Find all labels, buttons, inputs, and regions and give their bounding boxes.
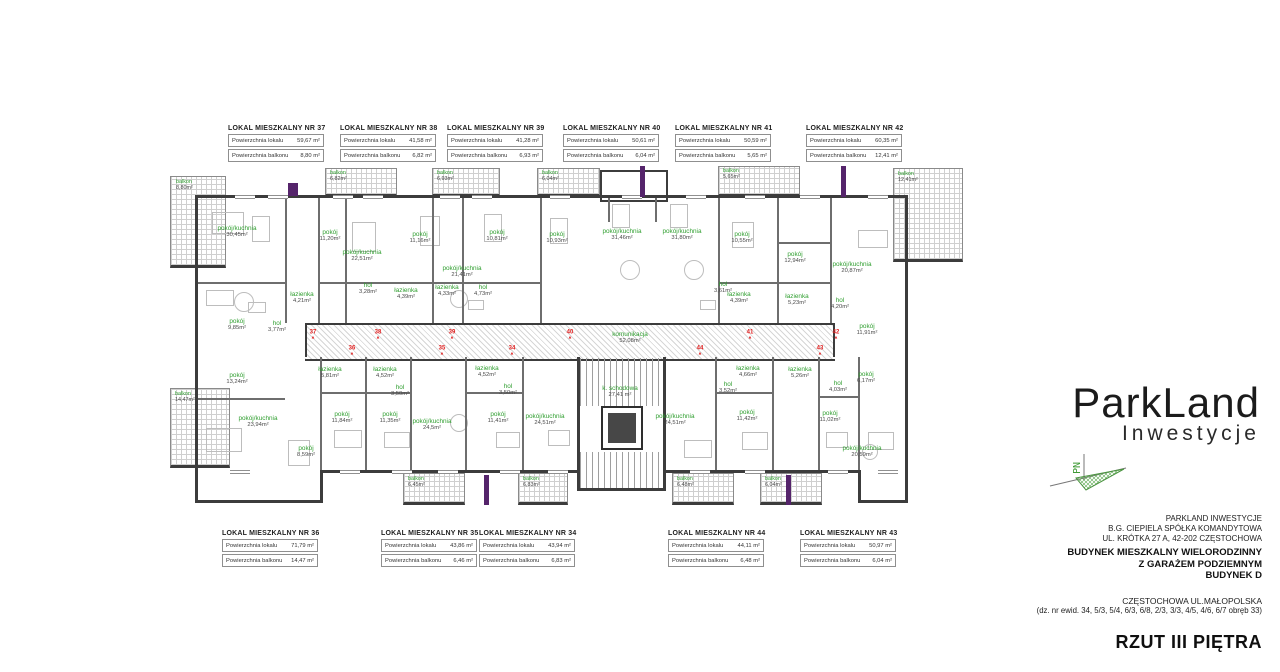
apartment-marker: 36▲ [349, 346, 356, 355]
furniture-table [234, 292, 254, 312]
room-area: 11,16m² [410, 238, 431, 245]
company-line: PARKLAND INWESTYCJE [1010, 514, 1262, 524]
furniture [206, 290, 234, 306]
partition-wall [197, 398, 285, 400]
apartment-table-title: LOKAL MIESZKALNY NR 38 [340, 125, 436, 132]
partition-wall [718, 198, 720, 323]
room-name: pokój [380, 411, 401, 418]
furniture [612, 204, 630, 228]
window [235, 195, 255, 199]
partition-wall [365, 357, 367, 470]
room-label: łazienka4,33m² [435, 284, 458, 298]
location-line: CZĘSTOCHOWA UL.MAŁOPOLSKA [1010, 596, 1262, 606]
room-name: pokój [332, 411, 353, 418]
apt-row-label: Powierzchnia lokalu [679, 138, 730, 144]
room-name: hol [831, 297, 849, 304]
room-label: hol3,28m² [359, 282, 377, 296]
room-name: pokój/kuchnia [217, 225, 256, 232]
room-area: 9,85m² [228, 325, 246, 332]
room-name: pokój [731, 231, 752, 238]
apartment-table-row: Powierzchnia balkonu6,46 m² [381, 554, 477, 567]
room-label: łazienka5,26m² [788, 366, 811, 380]
room-name: pokój [784, 251, 805, 258]
expansion-joint-mark [786, 475, 791, 505]
room-area: 11,02m² [820, 417, 841, 424]
room-area: 4,33m² [435, 291, 458, 298]
room-area: 10,81m² [486, 236, 507, 243]
building-line: BUDYNEK MIESZKALNY WIELORODZINNY [1010, 547, 1262, 559]
furniture [700, 300, 716, 310]
room-label: łazienka4,52m² [373, 366, 396, 380]
room-label: pokój/kuchnia22,51m² [342, 249, 381, 263]
window [878, 470, 898, 474]
apt-row-label: Powierzchnia balkonu [226, 558, 282, 564]
apartment-marker: 42▲ [833, 330, 840, 339]
room-label: pokój10,55m² [731, 231, 752, 245]
room-label: łazienka4,39m² [727, 291, 750, 305]
balcony-area: 8,80m² [176, 186, 193, 192]
room-name: hol [714, 281, 732, 288]
apartment-table-title: LOKAL MIESZKALNY NR 36 [222, 530, 318, 537]
room-area: 11,91m² [857, 330, 878, 337]
room-label: łazienka4,39m² [394, 287, 417, 301]
room-name: pokój [410, 231, 431, 238]
wall [905, 195, 908, 503]
apartment-table-title: LOKAL MIESZKALNY NR 42 [806, 125, 902, 132]
apartment-table-title: LOKAL MIESZKALNY NR 37 [228, 125, 324, 132]
balcony-area: 6,04m² [542, 177, 559, 183]
apt-row-value: 6,93 m² [519, 153, 539, 159]
window [745, 195, 765, 199]
wall [858, 500, 908, 503]
apt-row-value: 6,82 m² [412, 153, 432, 159]
room-label: pokój11,16m² [410, 231, 431, 245]
apartment-marker: 35▲ [439, 346, 446, 355]
partition-wall [655, 198, 657, 222]
partition-wall [285, 198, 287, 323]
wall [320, 470, 323, 503]
furniture [548, 430, 570, 446]
apt-row-value: 43,94 m² [548, 543, 571, 549]
apartment-table: LOKAL MIESZKALNY NR 39Powierzchnia lokal… [447, 125, 543, 164]
window [828, 470, 848, 474]
apartment-table-row: Powierzchnia balkonu6,93 m² [447, 149, 543, 162]
apt-row-label: Powierzchnia balkonu [483, 558, 539, 564]
room-label: k. schodowa27,41 m² [602, 385, 638, 399]
window [333, 195, 353, 199]
apartment-table-row: Powierzchnia lokalu60,35 m² [806, 134, 902, 147]
apartment-table-row: Powierzchnia balkonu14,47 m² [222, 554, 318, 567]
furniture [684, 440, 712, 458]
room-name: pokój [297, 445, 315, 452]
apartment-marker: 39▲ [449, 330, 456, 339]
window [500, 470, 520, 474]
room-label: pokój11,41m² [488, 411, 509, 425]
room-label: łazienka4,52m² [475, 365, 498, 379]
apartment-table-row: Powierzchnia lokalu50,59 m² [675, 134, 771, 147]
door-arrow-icon: ▲ [833, 336, 840, 339]
room-name: k. schodowa [602, 385, 638, 392]
room-area: 4,21m² [290, 298, 313, 305]
apt-row-value: 8,80 m² [300, 153, 320, 159]
expansion-joint-mark [640, 166, 645, 197]
door-arrow-icon: ▲ [310, 336, 317, 339]
apt-row-value: 12,41 m² [875, 153, 898, 159]
room-label: pokój11,35m² [380, 411, 401, 425]
window [340, 470, 360, 474]
furniture-table [620, 260, 640, 280]
room-name: pokój/kuchnia [602, 228, 641, 235]
door-arrow-icon: ▲ [509, 352, 516, 355]
room-name: łazienka [435, 284, 458, 291]
door-arrow-icon: ▲ [349, 352, 356, 355]
room-name: łazienka [373, 366, 396, 373]
room-area: 20,59m² [842, 452, 881, 459]
room-name: pokój [226, 372, 247, 379]
partition-wall [197, 282, 285, 284]
apt-row-label: Powierzchnia lokalu [385, 543, 436, 549]
apt-row-value: 6,04 m² [635, 153, 655, 159]
window [868, 195, 888, 199]
apartment-table-row: Powierzchnia balkonu8,80 m² [228, 149, 324, 162]
room-name: pokój [486, 229, 507, 236]
apt-row-label: Powierzchnia balkonu [810, 153, 866, 159]
apt-row-label: Powierzchnia balkonu [385, 558, 441, 564]
room-label: hol3,77m² [268, 320, 286, 334]
furniture [334, 430, 362, 448]
room-area: 8,59m² [297, 452, 315, 459]
balcony-label: balkon6,04m² [765, 477, 782, 489]
room-name: pokój [546, 231, 567, 238]
door-arrow-icon: ▲ [375, 336, 382, 339]
room-label: hol3,50m² [499, 383, 517, 397]
north-arrow-icon: PN [1046, 446, 1130, 498]
apt-row-value: 14,47 m² [291, 558, 314, 564]
partition-wall [432, 198, 434, 323]
apartment-table: LOKAL MIESZKALNY NR 41Powierzchnia lokal… [675, 125, 771, 164]
brand-subtitle: Inwestycje [1010, 422, 1260, 446]
room-name: pokój/kuchnia [525, 413, 564, 420]
balcony-area: 5,65m² [723, 175, 740, 181]
apt-row-value: 41,28 m² [516, 138, 539, 144]
window [622, 195, 642, 199]
building-line: BUDYNEK D [1010, 570, 1262, 582]
balcony-label: balkon12,41m² [898, 172, 918, 184]
furniture [496, 432, 520, 448]
apartment-table: LOKAL MIESZKALNY NR 40Powierzchnia lokal… [563, 125, 659, 164]
wall [833, 323, 835, 357]
room-area: 5,81m² [318, 373, 341, 380]
room-name: pokój [857, 323, 878, 330]
room-name: pokój [488, 411, 509, 418]
room-area: 4,52m² [373, 373, 396, 380]
room-area: 3,50m² [499, 390, 517, 397]
apt-row-value: 6,04 m² [872, 558, 892, 564]
partition-wall [410, 357, 412, 470]
room-label: pokój/kuchnia31,46m² [602, 228, 641, 242]
room-area: 21,41m² [442, 272, 481, 279]
furniture [352, 222, 376, 252]
partition-wall [462, 198, 464, 323]
apartment-table-title: LOKAL MIESZKALNY NR 34 [479, 530, 575, 537]
room-name: łazienka [785, 293, 808, 300]
apartment-table-row: Powierzchnia lokalu41,28 m² [447, 134, 543, 147]
expansion-joint-mark [288, 183, 298, 196]
room-label: hol4,20m² [831, 297, 849, 311]
partition-wall [465, 357, 467, 470]
room-name: komunikacja [612, 331, 648, 338]
balcony-area: 6,83m² [523, 483, 540, 489]
room-label: pokój/kuchnia24,5m² [412, 418, 451, 432]
apartment-table: LOKAL MIESZKALNY NR 35Powierzchnia lokal… [381, 530, 477, 569]
apt-row-label: Powierzchnia lokalu [232, 138, 283, 144]
wall [577, 488, 666, 491]
partition-wall [715, 357, 717, 470]
apt-row-value: 50,59 m² [744, 138, 767, 144]
room-label: pokój/kuchnia30,45m² [217, 225, 256, 239]
balcony-label: balkon6,48m² [677, 477, 694, 489]
apt-row-label: Powierzchnia lokalu [483, 543, 534, 549]
apartment-table: LOKAL MIESZKALNY NR 43Powierzchnia lokal… [800, 530, 896, 569]
apt-row-label: Powierzchnia lokalu [810, 138, 861, 144]
balcony-area: 6,45m² [408, 483, 425, 489]
room-name: łazienka [394, 287, 417, 294]
apt-row-label: Powierzchnia balkonu [672, 558, 728, 564]
partition-wall [718, 282, 830, 284]
room-label: łazienka5,23m² [785, 293, 808, 307]
expansion-joint-mark [484, 475, 489, 505]
room-name: pokój [857, 371, 875, 378]
window [745, 470, 765, 474]
room-area: 20,87m² [832, 268, 871, 275]
apartment-table-row: Powierzchnia balkonu6,83 m² [479, 554, 575, 567]
room-area: 4,39m² [394, 294, 417, 301]
apartment-table: LOKAL MIESZKALNY NR 44Powierzchnia lokal… [668, 530, 764, 569]
room-name: pokój/kuchnia [342, 249, 381, 256]
room-area: 10,93m² [546, 238, 567, 245]
apt-row-value: 43,86 m² [450, 543, 473, 549]
partition-wall [540, 198, 542, 323]
apartment-marker: 43▲ [817, 346, 824, 355]
window [268, 195, 288, 199]
partition-wall [772, 357, 774, 470]
apt-row-label: Powierzchnia balkonu [232, 153, 288, 159]
door-arrow-icon: ▲ [449, 336, 456, 339]
company-line: UL. KRÓTKA 27 A, 42-202 CZĘSTOCHOWA [1010, 534, 1262, 544]
room-label: pokój11,91m² [857, 323, 878, 337]
window [392, 470, 412, 474]
apartment-table: LOKAL MIESZKALNY NR 42Powierzchnia lokal… [806, 125, 902, 164]
room-name: pokój/kuchnia [238, 415, 277, 422]
apt-row-value: 41,58 m² [409, 138, 432, 144]
apt-row-value: 5,65 m² [747, 153, 767, 159]
room-label: pokój/kuchnia24,51m² [525, 413, 564, 427]
balcony-label: balkon5,65m² [723, 169, 740, 181]
apartment-table-title: LOKAL MIESZKALNY NR 35 [381, 530, 477, 537]
brand-logo: ParkLand [1010, 382, 1260, 424]
apartment-table-title: LOKAL MIESZKALNY NR 39 [447, 125, 543, 132]
address-block: PARKLAND INWESTYCJE B.G. CIEPIELA SPÓŁKA… [1010, 514, 1262, 615]
room-label: pokój12,94m² [784, 251, 805, 265]
window [550, 195, 570, 199]
room-area: 5,23m² [785, 300, 808, 307]
apartment-marker: 44▲ [697, 346, 704, 355]
room-label: łazienka4,66m² [736, 365, 759, 379]
room-name: pokój [320, 229, 341, 236]
room-area: 4,73m² [474, 291, 492, 298]
room-label: pokój11,20m² [320, 229, 341, 243]
door-arrow-icon: ▲ [697, 352, 704, 355]
balcony-label: balkon6,93m² [437, 171, 454, 183]
balcony-label: balkon8,80m² [176, 180, 193, 192]
balcony-label: balkon14,47m² [175, 392, 195, 404]
room-area: 11,42m² [737, 416, 758, 423]
room-name: pokój/kuchnia [832, 261, 871, 268]
room-area: 31,80m² [662, 235, 701, 242]
apartment-marker: 37▲ [310, 330, 317, 339]
room-name: łazienka [318, 366, 341, 373]
apartment-table-row: Powierzchnia lokalu43,86 m² [381, 539, 477, 552]
apt-row-value: 50,97 m² [869, 543, 892, 549]
balcony-label: balkon6,04m² [542, 171, 559, 183]
apartment-table-title: LOKAL MIESZKALNY NR 40 [563, 125, 659, 132]
room-area: 11,35m² [380, 418, 401, 425]
room-area: 4,03m² [829, 387, 847, 394]
room-label: łazienka5,81m² [318, 366, 341, 380]
apt-row-value: 71,79 m² [291, 543, 314, 549]
apt-row-value: 50,61 m² [632, 138, 655, 144]
room-area: 11,84m² [332, 418, 353, 425]
partition-wall [522, 357, 524, 470]
partition-wall [777, 242, 830, 244]
partition-wall [318, 198, 320, 323]
room-name: pokój [228, 318, 246, 325]
room-area: 30,45m² [217, 232, 256, 239]
window [230, 470, 250, 474]
room-area: 4,20m² [831, 304, 849, 311]
elevator-car [608, 413, 636, 443]
room-name: hol [719, 381, 737, 388]
room-area: 24,51m² [525, 420, 564, 427]
apartment-table-row: Powierzchnia lokalu71,79 m² [222, 539, 318, 552]
room-label: pokój11,02m² [820, 410, 841, 424]
balcony-area: 6,93m² [437, 177, 454, 183]
apt-row-label: Powierzchnia balkonu [344, 153, 400, 159]
apartment-marker: 38▲ [375, 330, 382, 339]
apt-row-label: Powierzchnia lokalu [226, 543, 277, 549]
apartment-table-title: LOKAL MIESZKALNY NR 44 [668, 530, 764, 537]
balcony-label: balkon6,82m² [330, 171, 347, 183]
room-label: hol4,03m² [829, 380, 847, 394]
room-area: 6,17m² [857, 378, 875, 385]
room-area: 4,66m² [736, 372, 759, 379]
window [440, 195, 460, 199]
apartment-table-row: Powierzchnia balkonu5,65 m² [675, 149, 771, 162]
room-area: 22,51m² [342, 256, 381, 263]
balcony-area: 6,82m² [330, 177, 347, 183]
room-label: pokój9,85m² [228, 318, 246, 332]
room-area: 3,28m² [359, 289, 377, 296]
apt-row-value: 6,46 m² [453, 558, 473, 564]
window [363, 195, 383, 199]
room-area: 4,39m² [727, 298, 750, 305]
room-label: pokój/kuchnia20,87m² [832, 261, 871, 275]
balcony-area: 6,04m² [765, 483, 782, 489]
apt-row-value: 59,67 m² [297, 138, 320, 144]
wall [195, 195, 198, 503]
wall [577, 357, 580, 470]
room-name: hol [391, 384, 409, 391]
apt-row-label: Powierzchnia balkonu [567, 153, 623, 159]
apartment-table-row: Powierzchnia balkonu12,41 m² [806, 149, 902, 162]
expansion-joint-mark [841, 166, 846, 197]
room-area: 12,94m² [784, 258, 805, 265]
brand-block: ParkLand Inwestycje [1010, 382, 1260, 446]
apartment-table: LOKAL MIESZKALNY NR 34Powierzchnia lokal… [479, 530, 575, 569]
apartment-table-row: Powierzchnia lokalu50,97 m² [800, 539, 896, 552]
room-name: łazienka [727, 291, 750, 298]
staircase [580, 452, 663, 488]
apartment-table-row: Powierzchnia balkonu6,82 m² [340, 149, 436, 162]
apartment-marker: 40▲ [567, 330, 574, 339]
window [800, 195, 820, 199]
room-label: pokój/kuchnia20,59m² [842, 445, 881, 459]
apt-row-value: 44,11 m² [738, 543, 760, 549]
apartment-table: LOKAL MIESZKALNY NR 36Powierzchnia lokal… [222, 530, 318, 569]
elevator-shaft [601, 406, 643, 450]
furniture [742, 432, 768, 450]
room-label: łazienka4,21m² [290, 291, 313, 305]
apartment-table-row: Powierzchnia lokalu43,94 m² [479, 539, 575, 552]
room-name: pokój/kuchnia [442, 265, 481, 272]
north-label-text: PN [1072, 462, 1083, 474]
room-area: 3,50m² [391, 391, 409, 398]
company-line: B.G. CIEPIELA SPÓŁKA KOMANDYTOWA [1010, 524, 1262, 534]
room-area: 31,46m² [602, 235, 641, 242]
room-label: pokój13,24m² [226, 372, 247, 386]
room-area: 11,20m² [320, 236, 341, 243]
apt-row-label: Powierzchnia balkonu [679, 153, 735, 159]
room-name: pokój/kuchnia [412, 418, 451, 425]
balcony-label: balkon6,45m² [408, 477, 425, 489]
room-label: hol3,50m² [391, 384, 409, 398]
door-arrow-icon: ▲ [817, 352, 824, 355]
room-label: hol3,52m² [719, 381, 737, 395]
plan-sheet: balkon8,80m²balkon6,82m²balkon6,93m²balk… [0, 0, 1280, 672]
apartment-table-row: Powierzchnia lokalu41,58 m² [340, 134, 436, 147]
room-label: pokój10,81m² [486, 229, 507, 243]
room-name: łazienka [475, 365, 498, 372]
apartment-table: LOKAL MIESZKALNY NR 38Powierzchnia lokal… [340, 125, 436, 164]
room-name: pokój [737, 409, 758, 416]
room-area: 3,77m² [268, 327, 286, 334]
partition-wall [818, 396, 858, 398]
apartment-table-row: Powierzchnia balkonu6,48 m² [668, 554, 764, 567]
room-label: pokój/kuchnia23,94m² [238, 415, 277, 429]
room-name: hol [474, 284, 492, 291]
window [472, 195, 492, 199]
apartment-table-title: LOKAL MIESZKALNY NR 43 [800, 530, 896, 537]
room-label: pokój10,93m² [546, 231, 567, 245]
apt-row-value: 6,48 m² [740, 558, 760, 564]
room-name: łazienka [788, 366, 811, 373]
apt-row-value: 6,83 m² [551, 558, 571, 564]
window [690, 470, 710, 474]
apartment-table-row: Powierzchnia balkonu6,04 m² [800, 554, 896, 567]
room-name: hol [359, 282, 377, 289]
room-label: hol4,73m² [474, 284, 492, 298]
furniture [858, 230, 888, 248]
